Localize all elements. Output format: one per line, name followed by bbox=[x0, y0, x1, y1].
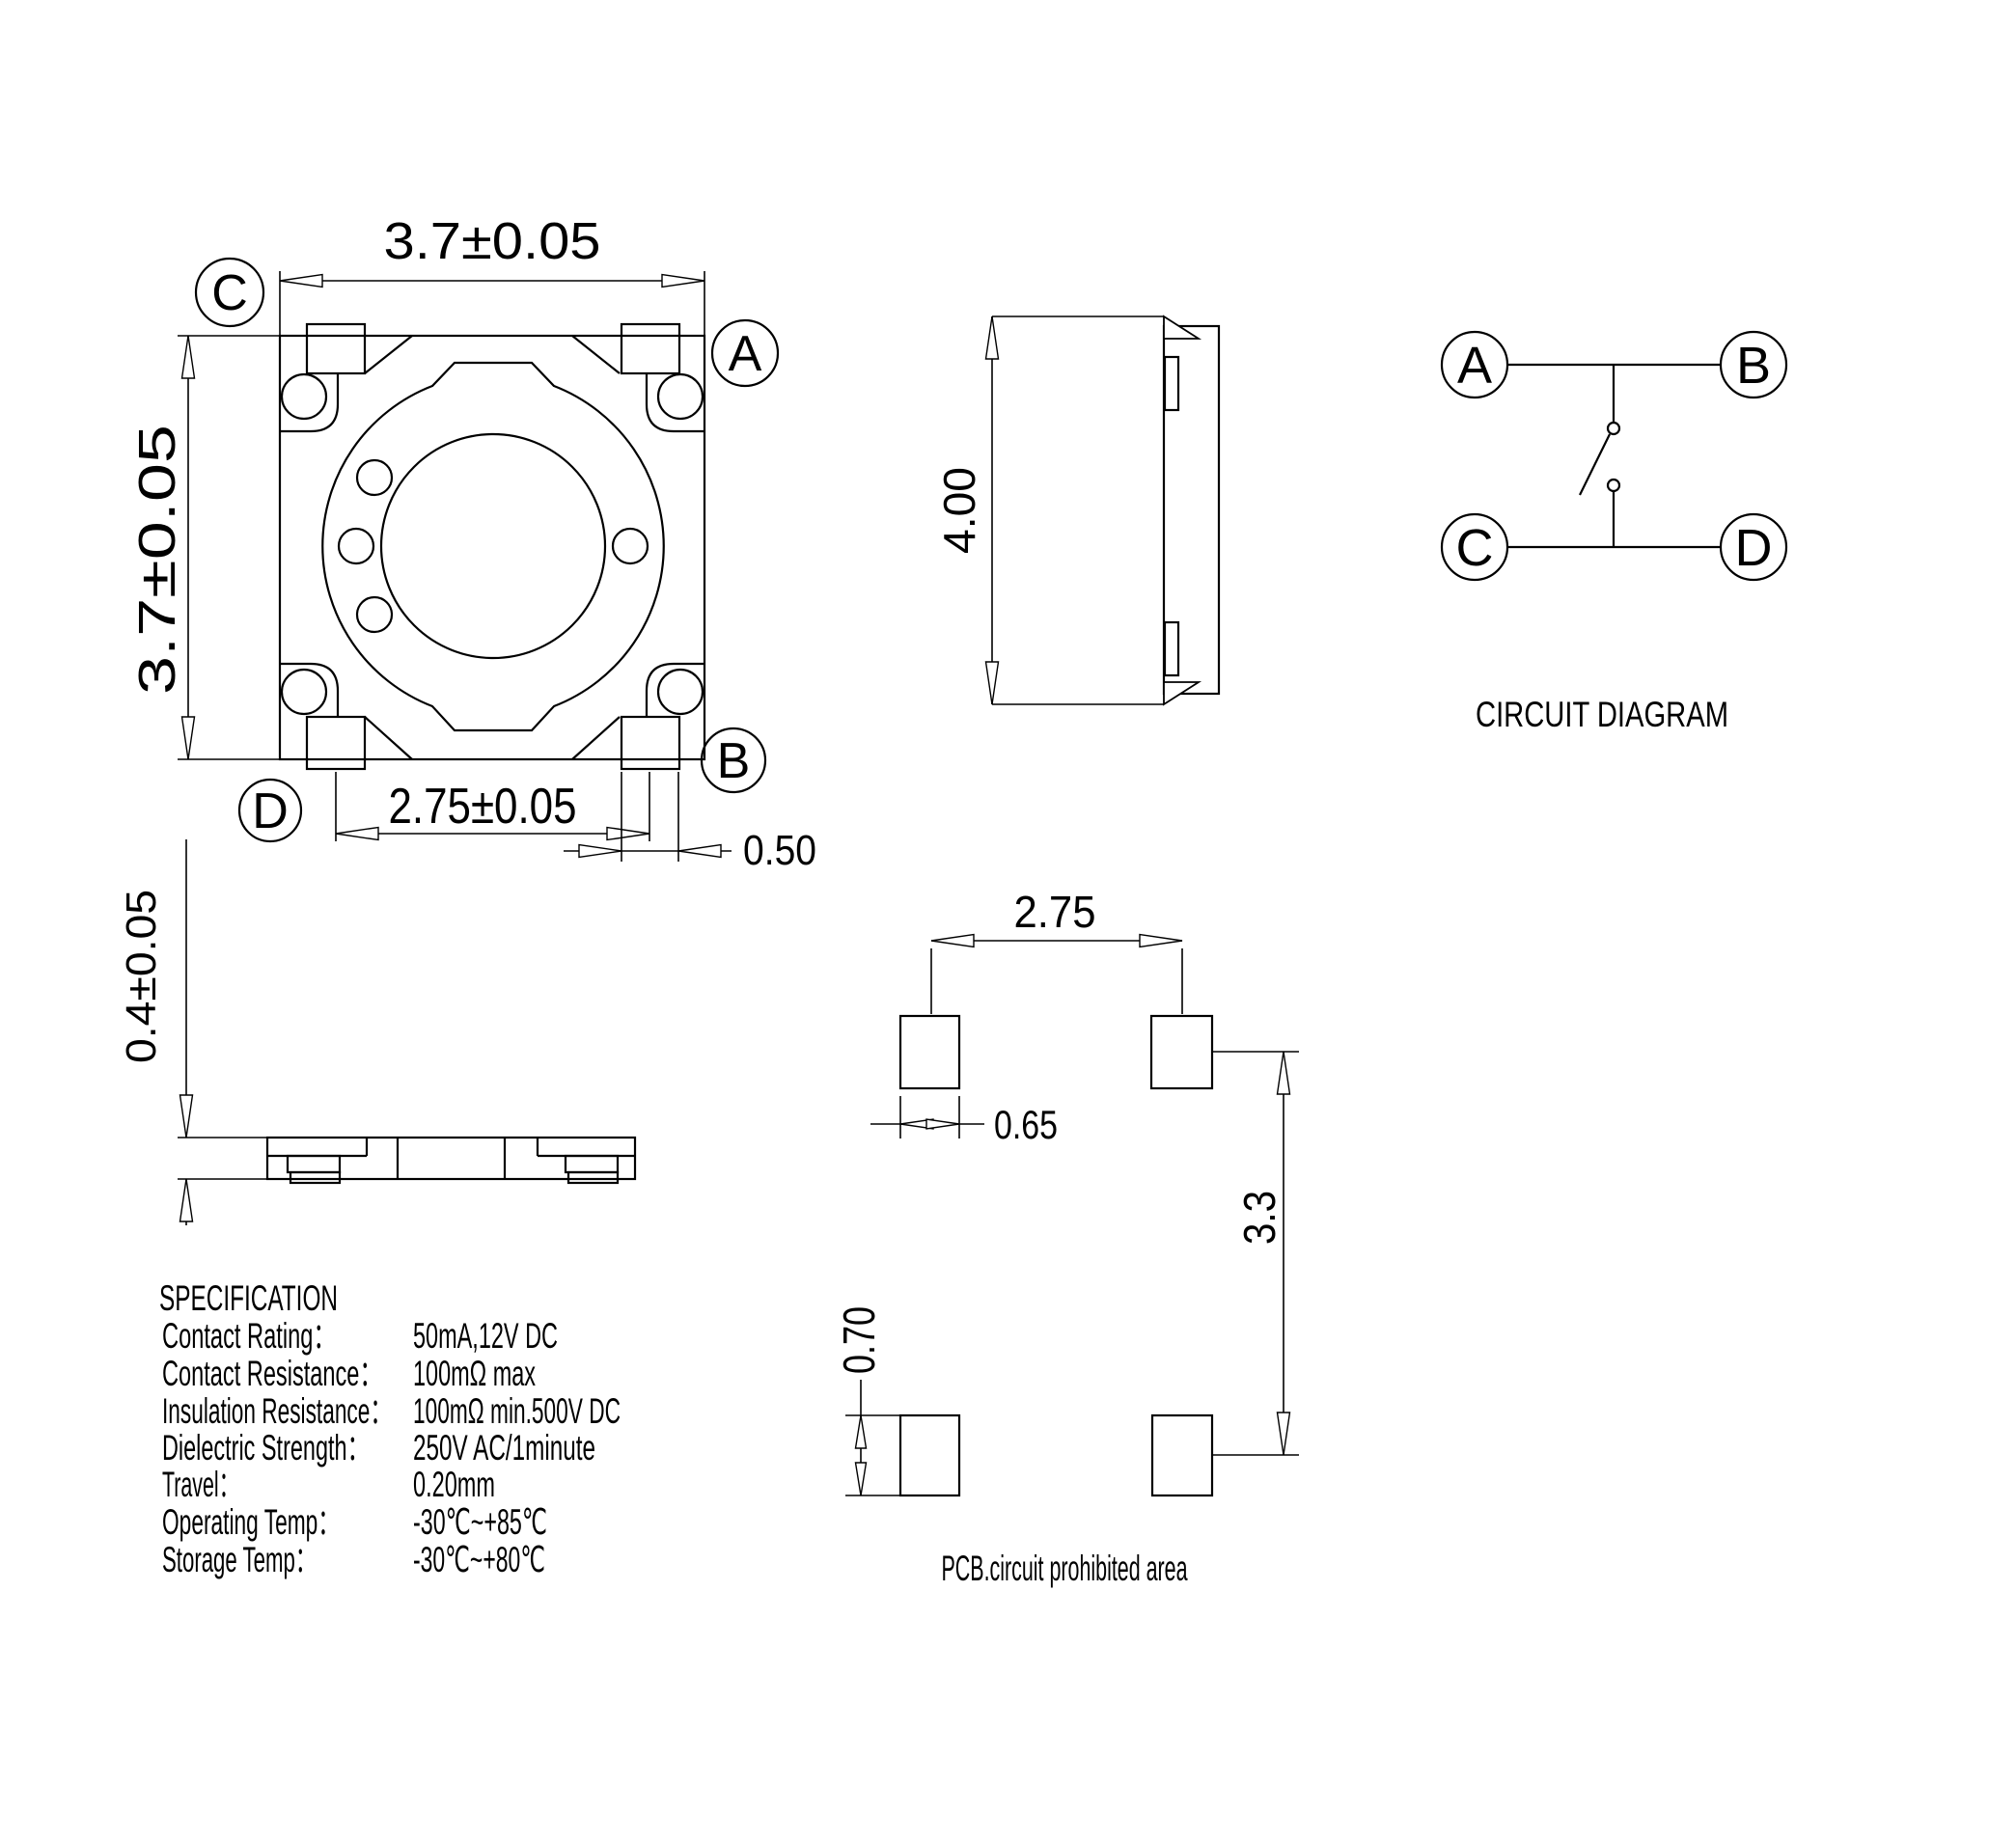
terminal-width-dim-label: 0.50 bbox=[743, 827, 816, 874]
spec-row-value-4: 0.20mm bbox=[413, 1465, 495, 1504]
dimension-pcb-pitch-y: 3.3 bbox=[1212, 1052, 1299, 1455]
dimension-terminal-width: 0.50 bbox=[564, 772, 816, 874]
circuit-diagram: A B C D CIRCUIT DIAGRAM bbox=[1442, 332, 1786, 734]
cover-edge-wedge bbox=[1164, 316, 1199, 339]
top-height-dim-label: 3.7±0.05 bbox=[128, 425, 186, 695]
dimension-arrow bbox=[986, 316, 999, 359]
spec-row-value-3: 250V AC/1minute bbox=[413, 1428, 595, 1468]
dimension-arrow bbox=[182, 717, 195, 759]
corner-tabs bbox=[280, 373, 704, 717]
dimension-pcb-pitch-x: 2.75 bbox=[931, 887, 1182, 1014]
pcb-pad-top-left bbox=[900, 1016, 959, 1088]
dimension-arrow bbox=[986, 662, 999, 704]
side-view: 4.00 bbox=[934, 316, 1219, 704]
spec-title: SPECIFICATION bbox=[159, 1278, 338, 1318]
dimension-pcb-pad-height: 0.70 bbox=[834, 1306, 900, 1495]
specification-table: SPECIFICATION Contact Rating： 50mA,12V D… bbox=[159, 1278, 621, 1579]
pcb-pitch-x-label: 2.75 bbox=[1014, 887, 1096, 937]
dimension-arrow bbox=[579, 845, 621, 858]
terminal-top-right bbox=[621, 324, 679, 373]
corner-label-C: C bbox=[196, 259, 263, 326]
profile-terminal-right-tip bbox=[568, 1172, 618, 1183]
dimension-arrow bbox=[1140, 935, 1182, 947]
pcb-caption: PCB.circuit prohibited area bbox=[942, 1549, 1188, 1588]
spec-row-value-6: -30℃~+80℃ bbox=[413, 1540, 545, 1579]
spec-row-label-4: Travel： bbox=[162, 1465, 239, 1504]
spec-row-label-1: Contact Resistance： bbox=[162, 1354, 382, 1393]
node-a-label: A bbox=[1457, 337, 1492, 395]
dimension-arrow bbox=[1278, 1052, 1290, 1094]
corner-label-A: A bbox=[712, 320, 778, 386]
dimension-arrow bbox=[180, 1179, 193, 1221]
tab-hole bbox=[658, 670, 703, 714]
switch-contact bbox=[1608, 480, 1619, 491]
pcb-pad-width-label: 0.65 bbox=[994, 1102, 1058, 1147]
terminal-top-left bbox=[307, 324, 365, 373]
spec-row-label-0: Contact Rating： bbox=[162, 1316, 336, 1356]
dimension-arrow bbox=[856, 1463, 867, 1495]
dimension-arrow bbox=[856, 1415, 867, 1448]
side-terminal-bottom bbox=[1165, 622, 1178, 675]
switch-body-outline bbox=[280, 336, 704, 759]
dimension-thickness: 0.4±0.05 bbox=[118, 839, 267, 1225]
pcb-pad-bottom-right bbox=[1152, 1415, 1212, 1495]
datasheet-drawing: 3.7±0.05 3.7±0.05 2.75±0.05 0.50 bbox=[0, 0, 2016, 1838]
pitch-dim-label: 2.75±0.05 bbox=[389, 779, 577, 835]
profile-view: 0.4±0.05 bbox=[118, 839, 635, 1225]
dimension-side-height: 4.00 bbox=[934, 316, 1164, 704]
terminal-bottom-right bbox=[621, 717, 679, 769]
dimension-pitch: 2.75±0.05 bbox=[336, 772, 649, 841]
profile-terminal-right bbox=[566, 1156, 618, 1172]
dimension-arrow bbox=[931, 935, 974, 947]
spec-row-value-2: 100mΩ min.500V DC bbox=[413, 1391, 621, 1431]
spec-row-value-1: 100mΩ max bbox=[413, 1354, 536, 1393]
spec-row-value-0: 50mA,12V DC bbox=[413, 1316, 558, 1356]
profile-terminal-left bbox=[288, 1156, 340, 1172]
side-height-dim-label: 4.00 bbox=[934, 467, 984, 554]
terminal-bottom-left bbox=[307, 717, 365, 769]
tab-hole bbox=[282, 374, 326, 419]
index-holes bbox=[339, 460, 648, 632]
node-d-label: D bbox=[1735, 519, 1773, 577]
dimension-arrow bbox=[607, 828, 649, 840]
spec-row-label-2: Insulation Resistance： bbox=[162, 1391, 392, 1431]
dimension-arrow bbox=[926, 1119, 959, 1129]
dimension-arrow bbox=[280, 275, 322, 288]
node-b-label: B bbox=[1736, 337, 1771, 395]
tab-hole bbox=[658, 374, 703, 419]
pcb-pitch-y-label: 3.3 bbox=[1234, 1191, 1284, 1245]
side-terminal-top bbox=[1165, 357, 1178, 410]
dimension-arrow bbox=[678, 845, 721, 858]
circuit-diagram-title: CIRCUIT DIAGRAM bbox=[1476, 695, 1728, 734]
pcb-pad-top-right bbox=[1151, 1016, 1212, 1088]
dimension-arrow bbox=[336, 828, 378, 840]
corner-label-a-text: A bbox=[729, 326, 762, 382]
dimension-pcb-pad-width: 0.65 bbox=[870, 1096, 1058, 1147]
thickness-dim-label: 0.4±0.05 bbox=[118, 890, 165, 1063]
corner-label-b-text: B bbox=[717, 733, 751, 789]
top-width-dim-label: 3.7±0.05 bbox=[384, 212, 601, 270]
corner-label-D: D bbox=[239, 780, 301, 841]
spec-row-label-6: Storage Temp： bbox=[162, 1540, 317, 1579]
top-view: 3.7±0.05 3.7±0.05 2.75±0.05 0.50 bbox=[128, 212, 816, 874]
pcb-pad-bottom-left bbox=[900, 1415, 959, 1495]
corner-label-d-text: D bbox=[252, 783, 289, 839]
side-body-outline bbox=[1164, 326, 1219, 694]
switch-contact bbox=[1608, 423, 1619, 434]
pcb-pad-height-label: 0.70 bbox=[834, 1306, 884, 1374]
pcb-layout: 2.75 0.65 0.70 3.3 PCB. bbox=[834, 887, 1299, 1588]
tab-hole bbox=[282, 670, 326, 714]
dimension-width: 3.7±0.05 bbox=[280, 212, 704, 336]
profile-terminal-left-tip bbox=[290, 1172, 340, 1183]
corner-label-c-text: C bbox=[211, 265, 248, 321]
dimension-height: 3.7±0.05 bbox=[128, 336, 280, 759]
spec-row-value-5: -30℃~+85℃ bbox=[413, 1502, 547, 1542]
dimension-arrow bbox=[662, 275, 704, 288]
corner-label-B: B bbox=[702, 728, 765, 792]
dimension-arrow bbox=[1278, 1413, 1290, 1455]
dimension-arrow bbox=[180, 1095, 193, 1138]
spec-row-label-5: Operating Temp： bbox=[162, 1502, 340, 1542]
push-button bbox=[381, 434, 605, 658]
switch-lever bbox=[1580, 434, 1610, 495]
spec-row-label-3: Dielectric Strength： bbox=[162, 1428, 370, 1468]
node-c-label: C bbox=[1456, 519, 1494, 577]
dimension-arrow bbox=[182, 336, 195, 378]
